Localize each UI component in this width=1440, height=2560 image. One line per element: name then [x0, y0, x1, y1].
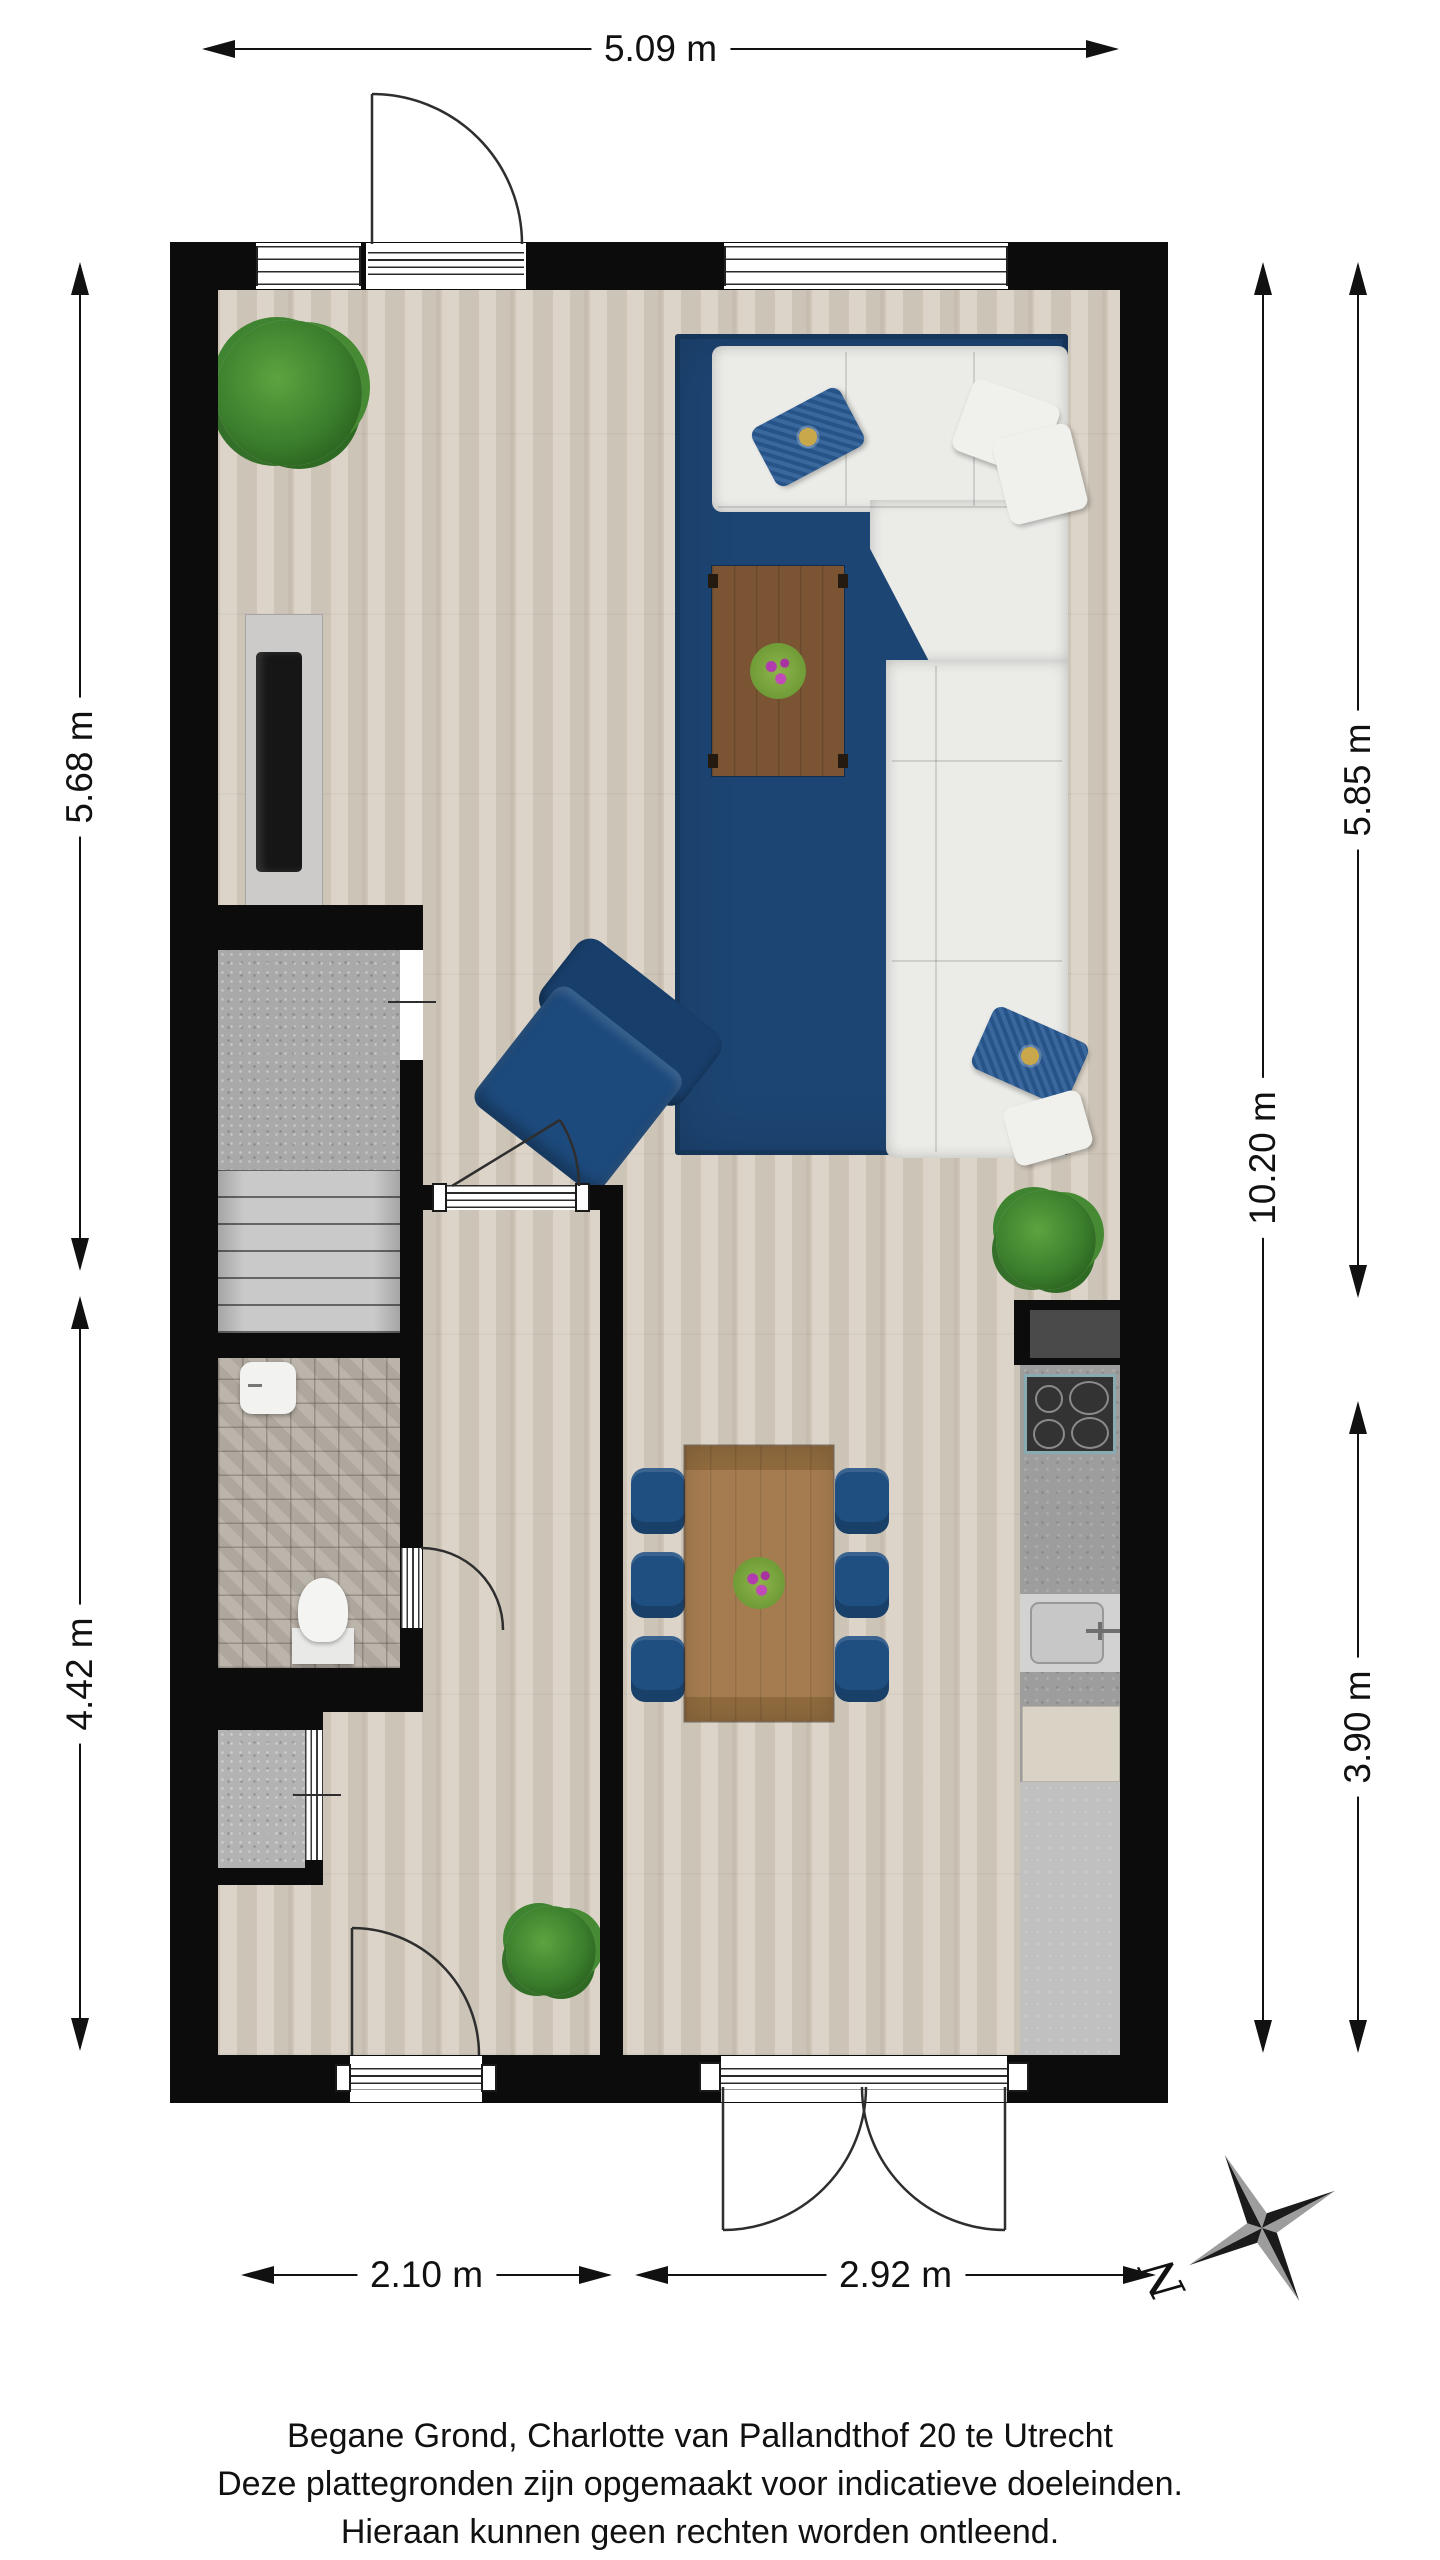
table-corner-bracket: [708, 754, 718, 768]
dimension-left-lower: 4.42 m: [61, 1297, 99, 2050]
arrowhead: [635, 2266, 668, 2284]
dining-chair: [835, 1636, 889, 1702]
burner: [1033, 1419, 1065, 1449]
door-frame: [699, 2062, 721, 2092]
dimension-right-upper: 5.85 m: [1339, 263, 1377, 1297]
arrowhead: [71, 262, 89, 295]
storage-floor: [218, 1730, 305, 1868]
dimension-top: 5.09 m: [203, 29, 1118, 69]
dining-chair: [631, 1636, 685, 1702]
arrowhead: [1086, 40, 1119, 58]
door-frame: [575, 1183, 590, 1212]
compass-blade-dark: [1215, 2155, 1262, 2233]
arrowhead: [1254, 2020, 1272, 2053]
front-door-sill: [350, 2068, 482, 2090]
caption-line-2: Deze plattegronden zijn opgemaakt voor i…: [0, 2460, 1400, 2508]
wall-storage-bottom: [218, 1868, 323, 1885]
dimension-bottom-left: 2.10 m: [242, 2255, 611, 2295]
wall-stair-toilet: [218, 1333, 423, 1358]
door-frame: [432, 1183, 447, 1212]
dimension-bottom-right: 2.92 m: [636, 2255, 1155, 2295]
floorplan-page: N 5.09 m 5.68 m 4.42 m 10.20 m 5.85 m 3: [0, 0, 1440, 2560]
plant-hallway: [506, 1906, 596, 1996]
dining-chair: [631, 1552, 685, 1618]
table-corner-bracket: [838, 754, 848, 768]
dimension-label: 2.10 m: [357, 2253, 496, 2297]
arrowhead: [1123, 2266, 1156, 2284]
door-frame: [1007, 2062, 1029, 2092]
kitchen-faucet: [1086, 1629, 1120, 1633]
door-frame: [481, 2064, 497, 2092]
sofa-seam: [892, 960, 1062, 962]
dimension-label: 5.09 m: [591, 27, 730, 71]
arrowhead: [202, 40, 235, 58]
plant-kitchen: [996, 1190, 1096, 1290]
living-door-threshold: [447, 1185, 575, 1210]
storage-door-leaf: [305, 1730, 323, 1860]
french-door-swing-left: [723, 2087, 866, 2230]
arrowhead: [579, 2266, 612, 2284]
dimension-label: 5.68 m: [58, 697, 102, 836]
kitchen-tall-cabinet: [1030, 1310, 1120, 1358]
window-top-left: [256, 246, 361, 286]
compass-rose: N: [1101, 2118, 1372, 2364]
dimension-label: 2.92 m: [826, 2253, 965, 2297]
burner: [1071, 1417, 1109, 1449]
caption-line-1: Begane Grond, Charlotte van Pallandthof …: [0, 2412, 1400, 2460]
compass-blade-gray: [1252, 2228, 1299, 2306]
staircase: [218, 1170, 400, 1333]
compass-blade-gray: [1262, 2191, 1340, 2238]
dimension-left-upper: 5.68 m: [61, 263, 99, 1270]
burner: [1035, 1385, 1063, 1413]
plant-living-room: [216, 320, 362, 466]
french-door-swing-right: [862, 2087, 1005, 2230]
dimension-right-total: 10.20 m: [1244, 263, 1282, 2052]
garden-door-sill: [368, 252, 524, 278]
exterior-wall-left: [170, 242, 218, 2103]
compass-blade-gray: [1225, 2150, 1272, 2228]
dishwasher-panel: [1022, 1706, 1120, 1782]
wall-hall-dining: [600, 1185, 623, 2055]
dimension-right-lower: 3.90 m: [1339, 1402, 1377, 2052]
wall-toilet-bottom: [218, 1668, 423, 1712]
arrowhead: [1349, 262, 1367, 295]
washbasin-tap: [248, 1384, 262, 1387]
table-corner-bracket: [838, 574, 848, 588]
garden-door-swing: [372, 94, 522, 244]
arrowhead: [71, 1296, 89, 1329]
french-doors-sill: [721, 2068, 1007, 2090]
table-corner-bracket: [708, 574, 718, 588]
cooktop: [1024, 1374, 1116, 1454]
compass-blade-gray: [1184, 2218, 1262, 2265]
exterior-wall-right: [1120, 242, 1168, 2103]
washbasin: [240, 1362, 296, 1414]
dimension-label: 5.85 m: [1336, 710, 1380, 849]
dimension-label: 3.90 m: [1336, 1657, 1380, 1796]
sofa-seam: [892, 760, 1062, 762]
compass-blade-dark: [1262, 2223, 1309, 2301]
kitchen-sink-basin: [1030, 1602, 1104, 1664]
dining-chair: [835, 1468, 889, 1534]
stair-door-opening: [400, 950, 423, 1060]
kitchen-faucet-handle: [1098, 1622, 1102, 1640]
kitchen-counter-lower: [1020, 1782, 1120, 2055]
dimension-label: 4.42 m: [58, 1604, 102, 1743]
arrowhead: [1349, 2020, 1367, 2053]
caption-line-3: Hieraan kunnen geen rechten worden ontle…: [0, 2508, 1400, 2556]
door-frame: [335, 2064, 351, 2092]
dining-table-flowers: [733, 1557, 785, 1609]
dimension-label: 10.20 m: [1241, 1078, 1285, 1238]
dining-chair: [835, 1552, 889, 1618]
dining-chair: [631, 1468, 685, 1534]
compass-blade-dark: [1257, 2181, 1335, 2228]
arrowhead: [1349, 1401, 1367, 1434]
compass-blade-dark: [1189, 2228, 1267, 2275]
arrowhead: [1349, 1265, 1367, 1298]
arrowhead: [1254, 262, 1272, 295]
coffee-table-flowers: [750, 643, 806, 699]
burner: [1069, 1381, 1109, 1415]
wall-stair-top: [218, 905, 423, 950]
arrowhead: [71, 1238, 89, 1271]
window-top-right: [724, 246, 1008, 286]
tv-screen: [256, 652, 302, 872]
stair-landing: [218, 950, 400, 1170]
arrowhead: [241, 2266, 274, 2284]
sofa-seam: [935, 666, 937, 1152]
toilet-door-leaf: [401, 1548, 422, 1628]
toilet-bowl: [298, 1578, 348, 1642]
arrowhead: [71, 2018, 89, 2051]
plan-caption: Begane Grond, Charlotte van Pallandthof …: [0, 2412, 1400, 2556]
